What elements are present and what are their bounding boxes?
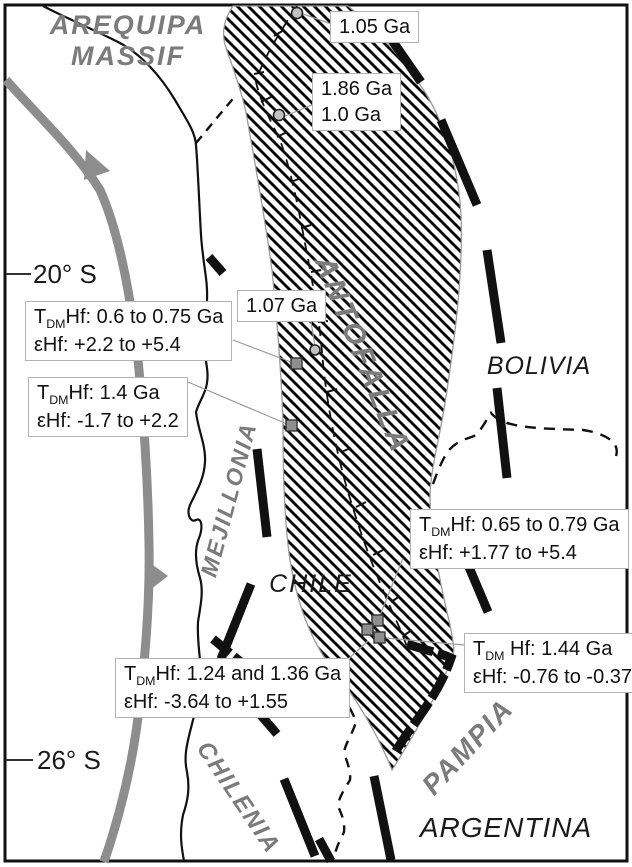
sample-square-icon: [286, 420, 297, 431]
ehf-line: εHf: -0.76 to -0.37: [473, 664, 632, 690]
terrane-label-line: MASSIF: [28, 41, 228, 72]
age-label-box: 1.05 Ga: [330, 11, 419, 43]
tdm-line: TDM Hf: 1.44 Ga: [473, 636, 632, 664]
sample-circle-icon: [274, 110, 285, 121]
isotope-label-box: TDMHf: 1.4 Ga εHf: -1.7 to +2.2: [28, 377, 188, 437]
country-label-chile: CHILE: [241, 570, 381, 599]
terrane-label-line: AREQUIPA: [28, 10, 228, 41]
border-peru-chile: [196, 95, 236, 143]
sample-circle-icon: [310, 345, 320, 355]
sample-circle-icon: [292, 8, 303, 19]
sample-square-icon: [362, 624, 373, 635]
ehf-line: εHf: +2.2 to +5.4: [34, 332, 223, 358]
age-value: 1.05 Ga: [339, 14, 410, 40]
border-bolivia-argentina: [433, 413, 617, 484]
country-label-bolivia: BOLIVIA: [459, 352, 619, 381]
age-label-box: 1.07 Ga: [237, 290, 326, 322]
age-value: 1.86 Ga: [321, 76, 392, 102]
age-label-box: 1.86 Ga 1.0 Ga: [312, 73, 401, 131]
tdm-line: TDMHf: 0.65 to 0.79 Ga: [419, 512, 620, 540]
age-value: 1.07 Ga: [246, 293, 317, 319]
ehf-line: εHf: -3.64 to +1.55: [124, 689, 341, 715]
ehf-line: εHf: +1.77 to +5.4: [419, 540, 620, 566]
isotope-label-box: TDMHf: 0.6 to 0.75 Ga εHf: +2.2 to +5.4: [25, 301, 232, 361]
tdm-line: TDMHf: 1.4 Ga: [37, 380, 179, 408]
sample-square-icon: [291, 358, 302, 369]
isotope-label-box: TDMHf: 0.65 to 0.79 Ga εHf: +1.77 to +5.…: [410, 509, 629, 569]
terrane-label-arequipa-massif: AREQUIPA MASSIF: [28, 10, 228, 72]
ehf-line: εHf: -1.7 to +2.2: [37, 408, 179, 434]
terrane-map-figure: AREQUIPA MASSIF ANTOFALLA MEJILLONIA CHI…: [0, 0, 632, 867]
isotope-label-box: TDM Hf: 1.44 Ga εHf: -0.76 to -0.37: [464, 633, 632, 693]
country-label-argentina: ARGENTINA: [406, 812, 606, 844]
tdm-line: TDMHf: 1.24 and 1.36 Ga: [124, 661, 341, 689]
sample-square-icon: [374, 632, 385, 643]
latitude-label-26s: 26° S: [37, 745, 101, 776]
trench-teeth-icon: [84, 150, 110, 180]
tdm-line: TDMHf: 0.6 to 0.75 Ga: [34, 304, 223, 332]
trench-teeth-icon: [146, 560, 168, 593]
latitude-label-20s: 20° S: [33, 259, 97, 290]
isotope-label-box: TDMHf: 1.24 and 1.36 Ga εHf: -3.64 to +1…: [115, 658, 350, 718]
age-value: 1.0 Ga: [321, 102, 392, 128]
